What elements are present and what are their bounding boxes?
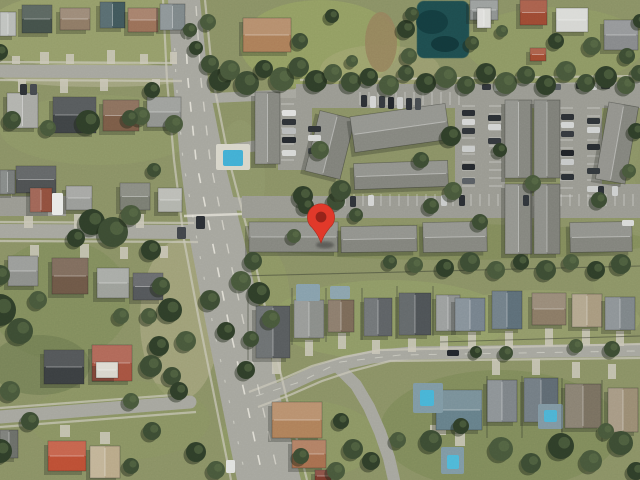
satellite-map: [0, 0, 640, 480]
map-viewport[interactable]: [0, 0, 640, 480]
pin-shadow: [316, 242, 334, 249]
pin-dot: [316, 212, 327, 223]
